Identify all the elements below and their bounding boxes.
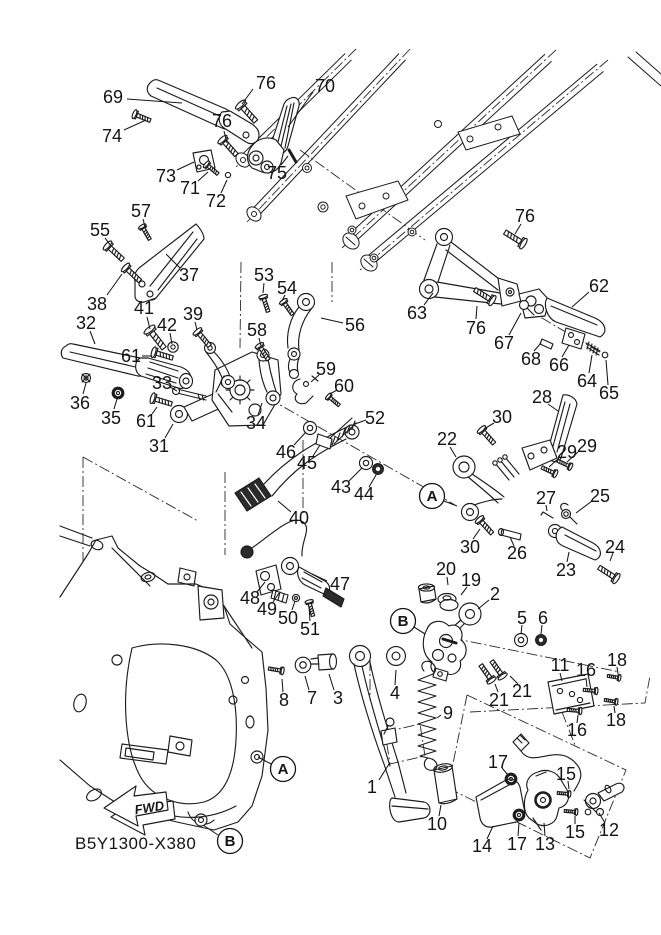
callout-21[interactable]: 21 xyxy=(512,681,532,701)
leader-line-65 xyxy=(606,360,608,385)
callout-15[interactable]: 15 xyxy=(556,764,576,784)
part-33-ball-stud xyxy=(173,388,207,401)
callout-40[interactable]: 40 xyxy=(289,508,309,528)
callout-25[interactable]: 25 xyxy=(590,486,610,506)
callout-55[interactable]: 55 xyxy=(90,220,110,240)
callout-46[interactable]: 46 xyxy=(276,442,296,462)
callout-67[interactable]: 67 xyxy=(494,333,514,353)
callout-10[interactable]: 10 xyxy=(427,814,447,834)
callout-66[interactable]: 66 xyxy=(549,355,569,375)
callout-26[interactable]: 26 xyxy=(507,543,527,563)
callout-24[interactable]: 24 xyxy=(605,537,625,557)
callout-69[interactable]: 69 xyxy=(103,87,123,107)
part-3-pivot-bolt xyxy=(311,654,337,670)
callout-28[interactable]: 28 xyxy=(532,387,552,407)
callout-18[interactable]: 18 xyxy=(606,710,626,730)
part-23-footrest xyxy=(549,525,601,561)
callout-15[interactable]: 15 xyxy=(565,822,585,842)
callout-5[interactable]: 5 xyxy=(517,608,527,628)
part-19-bushing xyxy=(438,594,458,611)
callout-12[interactable]: 12 xyxy=(599,820,619,840)
callout-21[interactable]: 21 xyxy=(489,690,509,710)
leader-line-73 xyxy=(177,162,194,170)
callout-13[interactable]: 13 xyxy=(535,834,555,854)
callout-41[interactable]: 41 xyxy=(134,298,154,318)
callout-19[interactable]: 19 xyxy=(461,570,481,590)
part-1-sidestand xyxy=(350,646,431,823)
callout-52[interactable]: 52 xyxy=(365,408,385,428)
callout-64[interactable]: 64 xyxy=(577,371,597,391)
callout-45[interactable]: 45 xyxy=(297,453,317,473)
callout-63[interactable]: 63 xyxy=(407,303,427,323)
part-27-pin xyxy=(541,512,553,518)
callout-65[interactable]: 65 xyxy=(599,383,619,403)
leader-line-38 xyxy=(107,274,122,295)
callout-22[interactable]: 22 xyxy=(437,429,457,449)
leader-line-67 xyxy=(509,313,521,335)
callout-16[interactable]: 16 xyxy=(576,660,596,680)
callout-38[interactable]: 38 xyxy=(87,294,107,314)
callout-72[interactable]: 72 xyxy=(206,191,226,211)
leader-line-62 xyxy=(572,292,589,307)
callout-8[interactable]: 8 xyxy=(279,690,289,710)
callout-54[interactable]: 54 xyxy=(277,278,297,298)
callout-18[interactable]: 18 xyxy=(607,650,627,670)
leader-line-74 xyxy=(124,120,146,130)
callout-61[interactable]: 61 xyxy=(121,346,141,366)
callout-76[interactable]: 76 xyxy=(256,73,276,93)
callout-76[interactable]: 76 xyxy=(212,111,232,131)
callout-6[interactable]: 6 xyxy=(538,608,548,628)
ref-letter-A: A xyxy=(278,761,289,778)
ref-letter-B: B xyxy=(225,833,236,850)
callout-76[interactable]: 76 xyxy=(515,206,535,226)
part-20-collar xyxy=(419,584,437,603)
callout-33[interactable]: 33 xyxy=(152,373,172,393)
callout-17[interactable]: 17 xyxy=(488,752,508,772)
callout-58[interactable]: 58 xyxy=(247,320,267,340)
callout-62[interactable]: 62 xyxy=(589,276,609,296)
callout-9[interactable]: 9 xyxy=(443,703,453,723)
callout-43[interactable]: 43 xyxy=(331,477,351,497)
part-code: B5Y1300-X380 xyxy=(75,834,196,853)
callout-47[interactable]: 47 xyxy=(330,574,350,594)
callout-73[interactable]: 73 xyxy=(156,166,176,186)
callout-11[interactable]: 11 xyxy=(551,655,570,675)
part-59-hook-lever xyxy=(293,376,318,404)
leader-line-9 xyxy=(437,715,441,718)
callout-32[interactable]: 32 xyxy=(76,313,96,333)
part-22-bracket xyxy=(453,455,519,521)
callout-4[interactable]: 4 xyxy=(390,683,400,703)
callout-51[interactable]: 51 xyxy=(300,619,320,639)
callout-61[interactable]: 61 xyxy=(136,411,156,431)
leader-line-1 xyxy=(379,764,389,780)
callout-60[interactable]: 60 xyxy=(334,376,354,396)
callout-39[interactable]: 39 xyxy=(183,304,203,324)
callout-20[interactable]: 20 xyxy=(436,559,456,579)
leader-line-76 xyxy=(242,89,253,104)
callout-71[interactable]: 71 xyxy=(180,178,200,198)
callout-30[interactable]: 30 xyxy=(492,407,512,427)
part-25-spring-clip xyxy=(561,503,577,524)
callout-74[interactable]: 74 xyxy=(102,126,122,146)
part-56-lever xyxy=(287,294,314,379)
callout-44[interactable]: 44 xyxy=(354,484,374,504)
callout-75[interactable]: 75 xyxy=(267,163,287,183)
part-69-footrest-bar xyxy=(147,80,259,144)
ref-letter-A: A xyxy=(427,488,438,505)
part-37-heel-plate xyxy=(134,224,204,302)
callout-53[interactable]: 53 xyxy=(254,265,274,285)
callout-29[interactable]: 29 xyxy=(577,436,597,456)
callout-49[interactable]: 49 xyxy=(257,599,277,619)
callout-1[interactable]: 1 xyxy=(367,777,377,797)
ref-letter-B: B xyxy=(398,613,409,630)
callout-56[interactable]: 56 xyxy=(345,315,365,335)
callout-35[interactable]: 35 xyxy=(101,408,121,428)
callout-70[interactable]: 70 xyxy=(315,76,335,96)
callout-17[interactable]: 17 xyxy=(507,834,527,854)
ref-leader-A xyxy=(444,501,457,506)
callout-16[interactable]: 16 xyxy=(567,720,587,740)
callout-42[interactable]: 42 xyxy=(157,315,177,335)
diagram-canvas: FWD B5Y1300-X380 69747670767371727557553… xyxy=(0,0,661,935)
callout-68[interactable]: 68 xyxy=(521,349,541,369)
leader-line-2 xyxy=(478,600,489,609)
callout-14[interactable]: 14 xyxy=(472,836,492,856)
callout-34[interactable]: 34 xyxy=(246,413,266,433)
callout-29[interactable]: 29 xyxy=(557,442,577,462)
part-10-collar xyxy=(433,762,457,803)
leader-line-56 xyxy=(321,318,343,323)
part-11-bracket xyxy=(548,674,594,714)
callout-3[interactable]: 3 xyxy=(333,688,343,708)
callout-2[interactable]: 2 xyxy=(490,584,500,604)
part-63-bracket xyxy=(420,229,522,307)
callout-23[interactable]: 23 xyxy=(556,560,576,580)
ref-leader-B xyxy=(414,627,425,634)
callout-31[interactable]: 31 xyxy=(149,436,169,456)
callout-76[interactable]: 76 xyxy=(466,318,486,338)
callout-27[interactable]: 27 xyxy=(536,488,556,508)
part-65-ball xyxy=(602,352,608,358)
parts-diagram-page: FWD B5Y1300-X380 69747670767371727557553… xyxy=(0,0,661,935)
part-26-pin xyxy=(499,529,522,541)
callout-7[interactable]: 7 xyxy=(307,688,317,708)
part-68-pin xyxy=(540,339,553,349)
part-2-bracket-body xyxy=(423,621,466,681)
part-12-solenoid xyxy=(584,783,624,815)
callout-36[interactable]: 36 xyxy=(70,393,90,413)
callout-50[interactable]: 50 xyxy=(278,608,298,628)
front-frame xyxy=(60,526,268,830)
callout-30[interactable]: 30 xyxy=(460,537,480,557)
callout-57[interactable]: 57 xyxy=(131,201,151,221)
callout-37[interactable]: 37 xyxy=(179,265,199,285)
